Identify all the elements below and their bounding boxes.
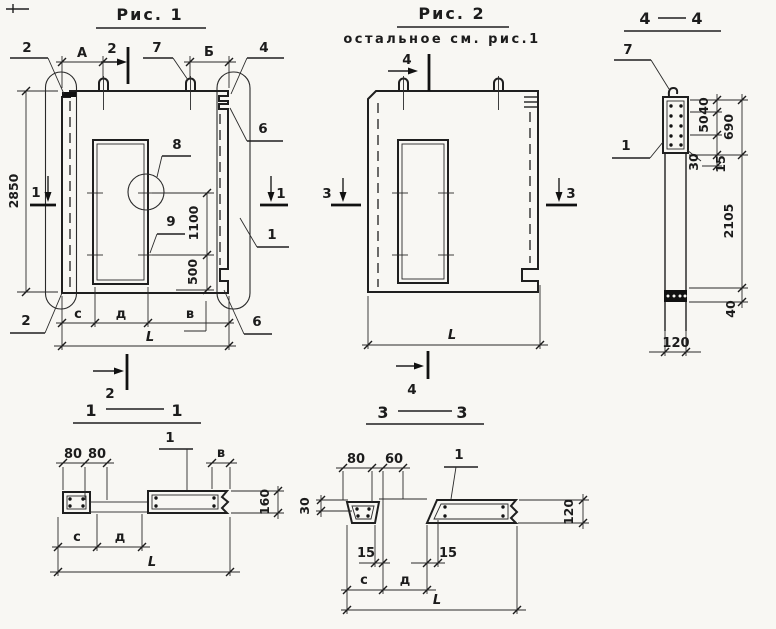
svg-text:15: 15	[357, 546, 375, 561]
svg-text:15: 15	[439, 546, 457, 561]
section-4-4: 4 4 7 1	[612, 9, 748, 356]
section44-hook	[669, 88, 677, 96]
svg-text:80: 80	[88, 447, 106, 462]
svg-text:2: 2	[105, 386, 114, 402]
svg-text:2: 2	[21, 313, 30, 329]
figure1-corner-plate	[62, 92, 76, 97]
figure1-right-edge-capsule	[217, 72, 250, 309]
figure2-marker-4-bottom: 4	[396, 351, 428, 398]
figure1-dim-1100-500: 1100 500	[152, 189, 214, 294]
figure2-opening	[392, 140, 454, 283]
section-3-3: 3 3 1	[297, 403, 589, 614]
svg-text:30: 30	[686, 153, 701, 171]
svg-text:1: 1	[165, 430, 174, 446]
figure2-marker-3-left: 3	[322, 178, 361, 205]
svg-text:L: L	[448, 328, 456, 343]
section-1-1: 1 1 1 80	[50, 401, 284, 576]
figure1-opening	[87, 140, 164, 284]
section11-title-right: 1	[171, 401, 184, 420]
figure1-callout-1: 1	[240, 218, 289, 247]
svg-text:40: 40	[723, 300, 738, 318]
figure1-callout-6-bottom: 6	[224, 290, 272, 334]
svg-text:3: 3	[322, 186, 331, 202]
section11-web-plate	[90, 502, 148, 512]
svg-text:д: д	[115, 530, 126, 545]
section11-callout-1: 1	[159, 430, 193, 490]
section33-title-left: 3	[377, 403, 390, 422]
svg-text:1: 1	[276, 186, 285, 202]
section33-slab-block	[427, 500, 517, 523]
svg-text:7: 7	[152, 40, 161, 56]
section11-title-left: 1	[85, 401, 98, 420]
figure1-marker-1-left: 1	[30, 176, 56, 205]
figure1-title: Рис. 1	[116, 5, 183, 24]
figure2-key-marks	[524, 97, 538, 107]
svg-text:2: 2	[107, 41, 116, 57]
section44-callout-1: 1	[612, 138, 663, 158]
figure1-callout-6-top: 6	[230, 108, 283, 141]
section44-callout-7: 7	[614, 42, 669, 89]
svg-text:120: 120	[561, 499, 576, 525]
svg-text:в: в	[186, 307, 194, 322]
scan-artifact	[6, 4, 29, 13]
svg-text:500: 500	[185, 259, 200, 285]
detail-circle	[128, 174, 164, 210]
svg-text:д: д	[116, 307, 127, 322]
figure1-callout-7: 7	[143, 40, 188, 80]
svg-text:690: 690	[721, 114, 736, 140]
figure2-panel-outline	[368, 91, 538, 292]
svg-text:6: 6	[258, 121, 267, 137]
figure1-marker-1-right: 1	[260, 176, 288, 205]
svg-text:4: 4	[407, 382, 416, 398]
svg-text:L: L	[148, 555, 156, 570]
section11-slab-block	[148, 491, 228, 513]
section11-dims: 80 80 в 160 с д L	[50, 446, 284, 576]
section33-callout-1: 1	[444, 447, 478, 499]
svg-text:с: с	[74, 307, 82, 322]
svg-text:д: д	[400, 573, 411, 588]
svg-text:30: 30	[297, 497, 312, 515]
figure2-title: Рис. 2	[418, 4, 485, 23]
technical-drawing-canvas: Рис. 1	[0, 0, 776, 629]
figure2-plan: Рис. 2 остальное см. рис.1 4	[322, 4, 577, 398]
figure2-dim-length: L	[362, 285, 548, 349]
section44-shaft	[664, 153, 687, 331]
svg-text:1: 1	[621, 138, 630, 154]
svg-text:L: L	[146, 330, 154, 345]
figure2-subtitle: остальное см. рис.1	[343, 32, 540, 47]
figure1-marker-2-top: 2	[101, 41, 128, 84]
figure2-marker-3-right: 3	[546, 178, 577, 205]
section33-title-right: 3	[456, 403, 469, 422]
svg-text:120: 120	[662, 336, 689, 351]
svg-text:8: 8	[172, 137, 181, 153]
svg-text:в: в	[217, 446, 225, 461]
figure1-callout-9: 9	[150, 214, 185, 253]
section33-rib-block	[347, 502, 379, 523]
svg-text:160: 160	[257, 489, 272, 515]
section33-dims: 80 60 30 120 15 15 с д	[297, 452, 589, 614]
svg-text:4: 4	[259, 40, 268, 56]
svg-text:1100: 1100	[186, 205, 201, 240]
figure1-callout-4: 4	[231, 40, 284, 94]
svg-text:2850: 2850	[6, 173, 21, 208]
svg-text:50: 50	[696, 115, 711, 133]
figure1-callout-8: 8	[157, 137, 191, 177]
figure1-plan: Рис. 1	[6, 5, 289, 402]
figure1-callout-2-top-left: 2	[10, 40, 64, 94]
svg-text:1: 1	[454, 447, 463, 463]
figure2-lifting-loops	[399, 76, 503, 110]
svg-text:3: 3	[566, 186, 575, 202]
svg-text:60: 60	[385, 452, 403, 467]
section44-title-left: 4	[639, 9, 652, 28]
svg-text:L: L	[433, 593, 441, 608]
svg-text:А: А	[77, 46, 87, 61]
figure1-panel-outline	[62, 91, 228, 293]
svg-text:7: 7	[623, 42, 632, 58]
svg-text:9: 9	[166, 214, 175, 230]
figure1-dim-b: Б	[184, 45, 236, 88]
figure1-dim-a: А	[56, 46, 110, 88]
figure1-marker-2-bottom: 2	[93, 354, 127, 402]
section11-rib-block	[63, 492, 90, 513]
svg-text:1: 1	[31, 185, 40, 201]
figure1-dim-length: L	[54, 330, 236, 350]
svg-text:80: 80	[64, 447, 82, 462]
svg-text:2: 2	[22, 40, 31, 56]
section44-title-right: 4	[691, 9, 704, 28]
svg-text:2105: 2105	[721, 204, 736, 239]
drawing-sheet: Рис. 1	[0, 0, 776, 629]
svg-text:15: 15	[713, 155, 728, 172]
svg-text:1: 1	[267, 227, 276, 243]
svg-text:40: 40	[696, 97, 711, 115]
svg-text:Б: Б	[204, 45, 214, 60]
svg-text:6: 6	[252, 314, 261, 330]
figure1-lifting-loops	[99, 76, 195, 110]
svg-text:80: 80	[347, 452, 365, 467]
svg-text:с: с	[73, 530, 81, 545]
figure1-callout-2-bottom-left: 2	[10, 293, 62, 333]
svg-text:4: 4	[402, 52, 411, 68]
svg-text:с: с	[360, 573, 368, 588]
